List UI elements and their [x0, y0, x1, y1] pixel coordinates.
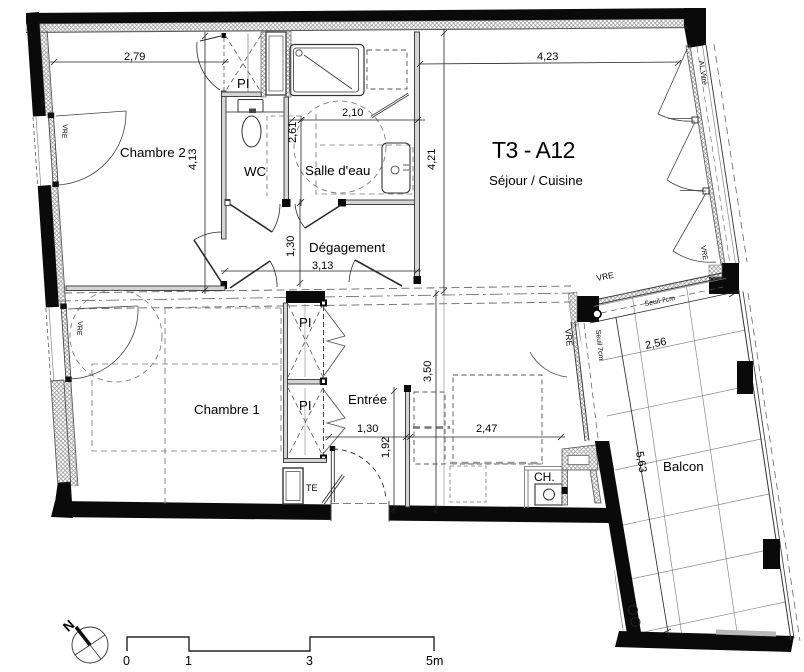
svg-text:Entrée: Entrée	[348, 392, 387, 407]
svg-text:1: 1	[185, 654, 192, 668]
svg-text:4,13: 4,13	[187, 149, 199, 170]
svg-text:5m: 5m	[426, 654, 443, 668]
svg-text:Balcon: Balcon	[663, 459, 704, 474]
svg-text:2,47: 2,47	[476, 423, 497, 435]
svg-text:3: 3	[306, 654, 313, 668]
svg-text:2,10: 2,10	[342, 107, 363, 119]
svg-text:TE: TE	[306, 483, 318, 493]
svg-text:VRE: VRE	[60, 124, 68, 139]
svg-text:Dégagement: Dégagement	[309, 240, 385, 255]
svg-text:VRE: VRE	[595, 270, 614, 283]
svg-text:PI: PI	[237, 76, 250, 91]
svg-text:2,79: 2,79	[124, 51, 145, 63]
svg-text:N: N	[60, 617, 77, 635]
svg-text:2,61: 2,61	[287, 122, 299, 143]
svg-text:Seuil 7cm: Seuil 7cm	[594, 329, 604, 360]
svg-text:CH.: CH.	[534, 470, 555, 484]
svg-text:Chambre 2: Chambre 2	[120, 145, 186, 160]
svg-text:4,21: 4,21	[426, 149, 438, 170]
svg-text:VRE: VRE	[75, 321, 83, 336]
svg-text:AL Vitré: AL Vitré	[697, 60, 708, 85]
svg-text:1,30: 1,30	[285, 236, 297, 257]
svg-text:Chambre 1: Chambre 1	[194, 402, 260, 417]
svg-text:WC: WC	[244, 164, 267, 179]
svg-text:1,30: 1,30	[357, 423, 378, 435]
svg-text:5,63: 5,63	[633, 450, 649, 473]
svg-text:2,56: 2,56	[644, 336, 667, 352]
svg-text:1,92: 1,92	[380, 437, 392, 458]
svg-text:0: 0	[123, 654, 130, 668]
svg-text:3,13: 3,13	[312, 260, 333, 272]
svg-text:VRE: VRE	[563, 328, 575, 347]
svg-text:VRE: VRE	[699, 245, 708, 261]
svg-text:3,50: 3,50	[422, 361, 434, 382]
svg-text:4,23: 4,23	[537, 51, 558, 63]
svg-text:Salle d'eau: Salle d'eau	[305, 163, 370, 178]
svg-text:PI: PI	[299, 398, 312, 413]
svg-text:Séjour / Cuisine: Séjour / Cuisine	[489, 173, 583, 188]
svg-text:PI: PI	[299, 315, 312, 330]
svg-text:T3 - A12: T3 - A12	[492, 137, 575, 163]
